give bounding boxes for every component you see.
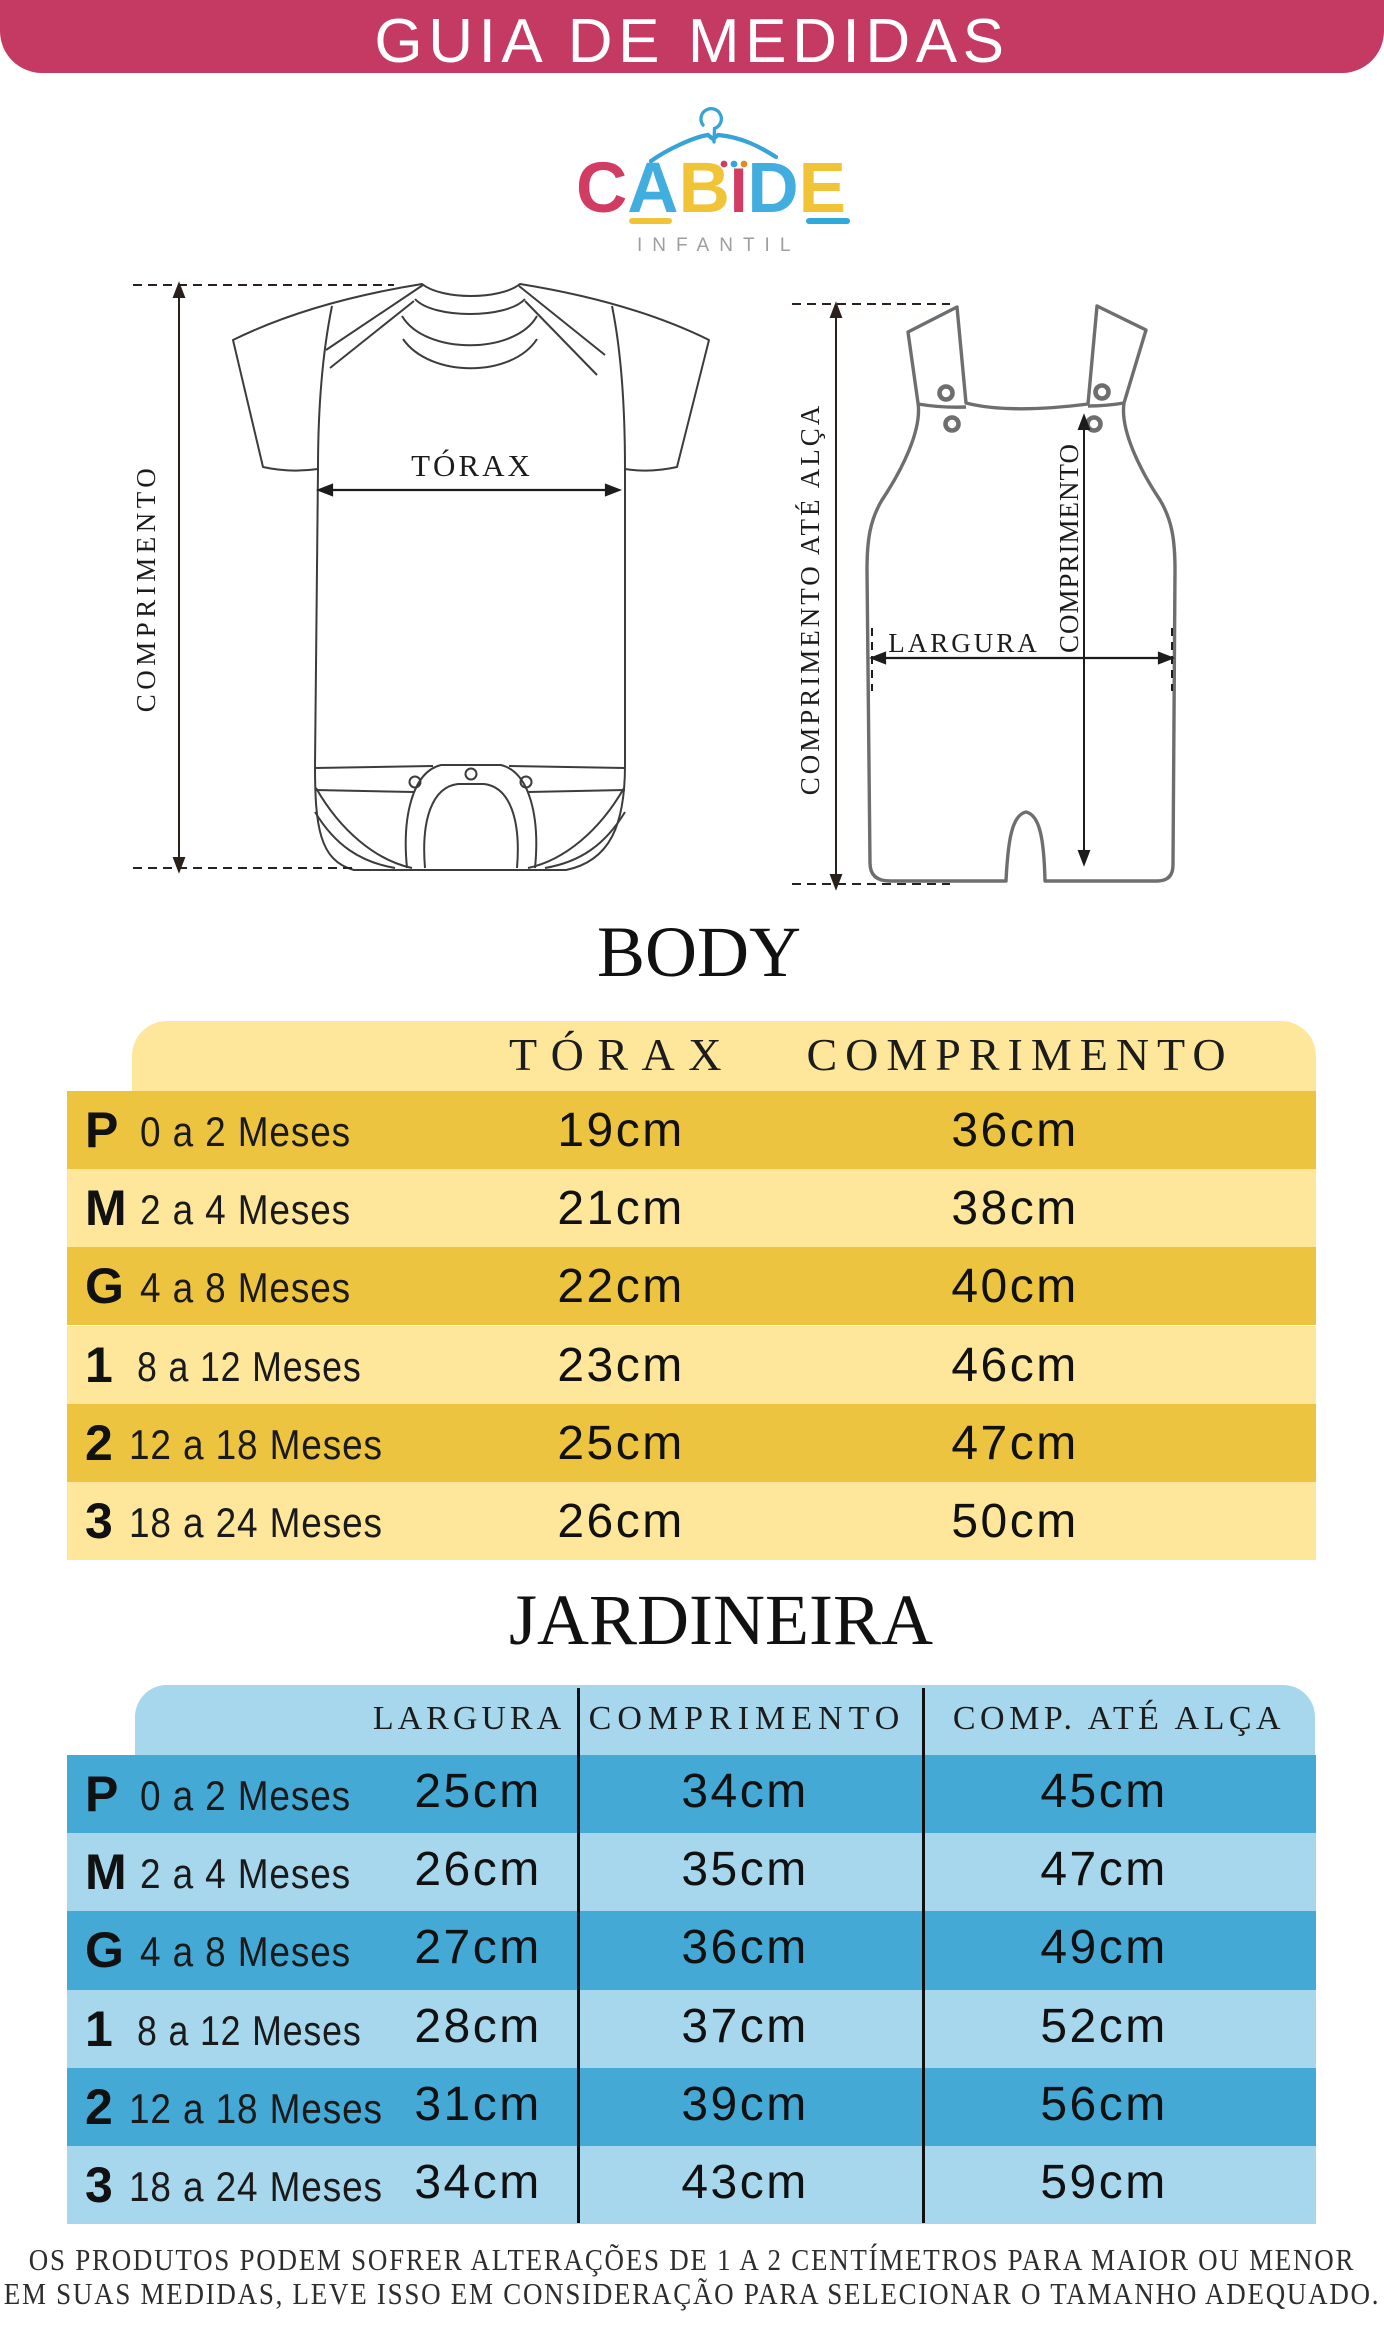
svg-text:LARGURA: LARGURA (888, 628, 1040, 658)
svg-text:COMPRIMENTO ATÉ ALÇA: COMPRIMENTO ATÉ ALÇA (795, 403, 825, 796)
svg-text:COMPRIMENTO: COMPRIMENTO (1054, 443, 1084, 653)
svg-text:TÓRAX: TÓRAX (411, 448, 533, 483)
svg-text:COMPRIMENTO: COMPRIMENTO (131, 464, 161, 713)
